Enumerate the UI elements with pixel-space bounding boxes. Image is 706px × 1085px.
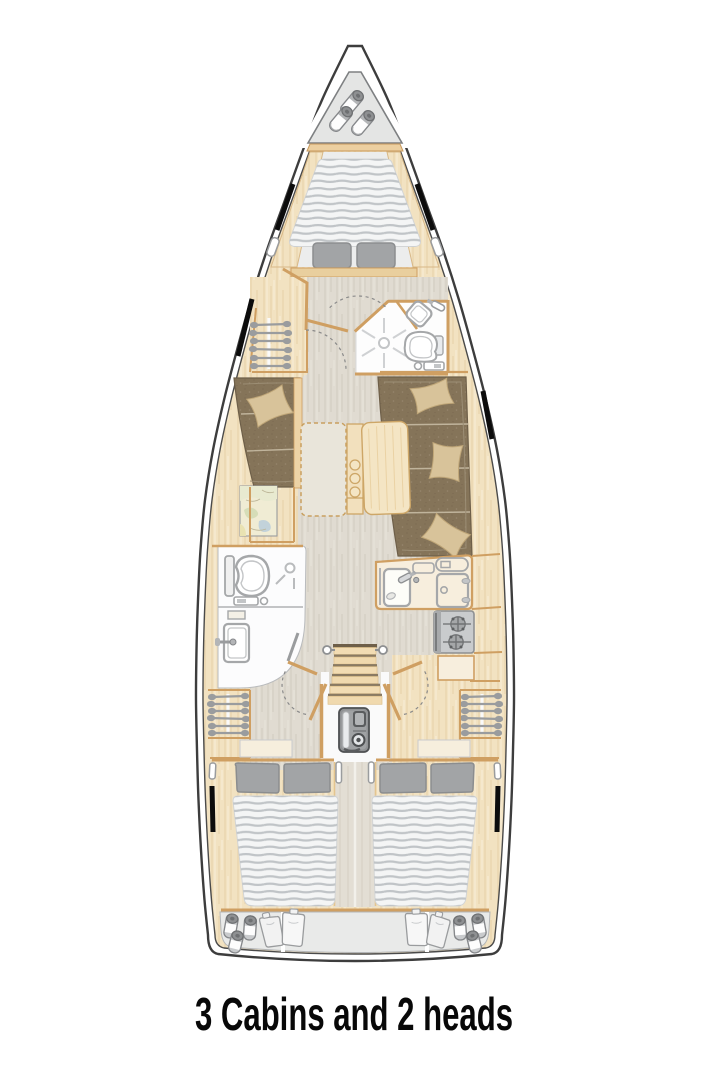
svg-text:3 Cabins and 2 heads: 3 Cabins and 2 heads — [195, 988, 513, 1040]
